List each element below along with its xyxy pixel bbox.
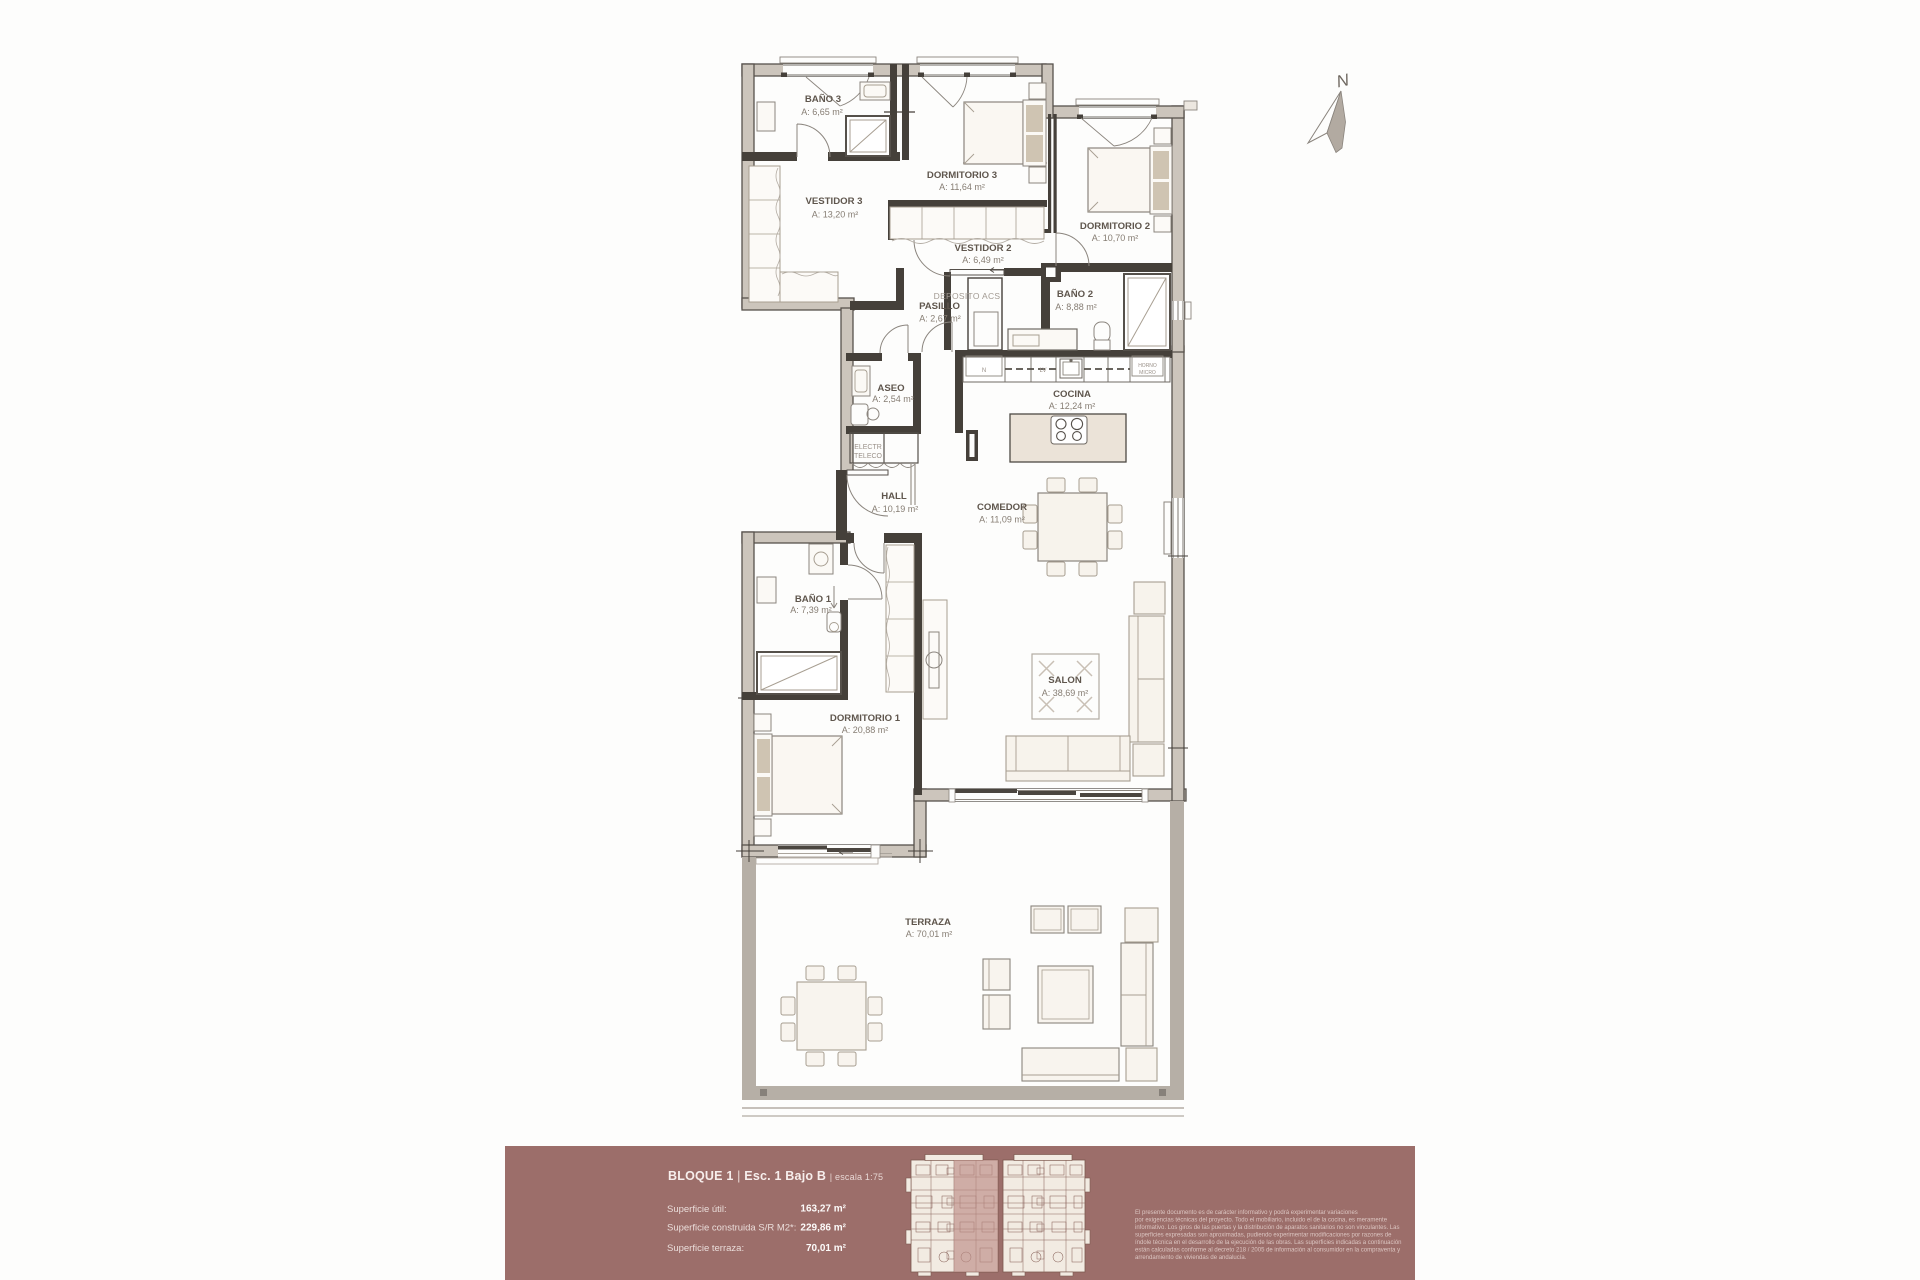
svg-text:A: 10,70 m²: A: 10,70 m² xyxy=(1092,233,1139,243)
svg-text:TELECO: TELECO xyxy=(854,453,883,460)
svg-text:A: 2,54 m²: A: 2,54 m² xyxy=(872,394,914,404)
svg-text:SALON: SALON xyxy=(1048,675,1082,686)
svg-text:VESTIDOR 3: VESTIDOR 3 xyxy=(805,196,862,207)
svg-text:DEPOSITO ACS: DEPOSITO ACS xyxy=(934,291,1001,301)
svg-text:A: 10,19 m²: A: 10,19 m² xyxy=(872,504,919,514)
svg-text:HALL: HALL xyxy=(881,491,907,502)
svg-text:superficies expresadas son apr: superficies expresadas son aproximadas, … xyxy=(1135,1233,1392,1239)
svg-text:informativo. Los giros de las: informativo. Los giros de las puertas y … xyxy=(1135,1225,1399,1231)
svg-text:A: 38,69 m²: A: 38,69 m² xyxy=(1042,688,1089,698)
svg-text:DORMITORIO 3: DORMITORIO 3 xyxy=(927,170,997,181)
svg-text:N: N xyxy=(982,368,986,374)
svg-text:están calculadas conforme al d: están calculadas conforme al decreto 218… xyxy=(1135,1248,1400,1254)
svg-text:A: 7,39 m²: A: 7,39 m² xyxy=(790,605,832,615)
svg-text:A: 20,88 m²: A: 20,88 m² xyxy=(842,725,889,735)
svg-text:A: 70,01 m²: A: 70,01 m² xyxy=(906,929,953,939)
svg-text:por exigencias técnicas del pr: por exigencias técnicas del proyecto. To… xyxy=(1135,1218,1388,1224)
svg-text:229,86 m²: 229,86 m² xyxy=(800,1223,846,1234)
svg-text:A: 11,64 m²: A: 11,64 m² xyxy=(939,182,985,192)
svg-text:BAÑO 3: BAÑO 3 xyxy=(805,94,841,105)
svg-text:El presente documento es de ca: El presente documento es de carácter inf… xyxy=(1135,1210,1358,1216)
svg-text:LV: LV xyxy=(1040,368,1047,374)
svg-text:A: 8,88 m²: A: 8,88 m² xyxy=(1055,302,1097,312)
svg-text:Superficie terraza:: Superficie terraza: xyxy=(667,1243,744,1254)
svg-text:DORMITORIO 2: DORMITORIO 2 xyxy=(1080,221,1150,232)
svg-text:VESTIDOR 2: VESTIDOR 2 xyxy=(954,243,1011,254)
svg-text:DORMITORIO 1: DORMITORIO 1 xyxy=(830,713,901,724)
svg-text:A: 6,49 m²: A: 6,49 m² xyxy=(962,255,1004,265)
svg-text:MICRO: MICRO xyxy=(1139,370,1156,376)
svg-text:A: 2,67 m²: A: 2,67 m² xyxy=(919,314,961,324)
svg-text:ASEO: ASEO xyxy=(877,383,905,394)
svg-text:163,27 m²: 163,27 m² xyxy=(800,1204,846,1215)
svg-text:Superficie útil:: Superficie útil: xyxy=(667,1204,727,1215)
svg-text:A: 13,20 m²: A: 13,20 m² xyxy=(812,210,859,220)
svg-text:PASILLO: PASILLO xyxy=(919,301,960,312)
svg-text:Superficie construida S/R M2*:: Superficie construida S/R M2*: xyxy=(667,1223,796,1234)
svg-text:A: 12,24 m²: A: 12,24 m² xyxy=(1049,401,1096,411)
svg-text:BLOQUE 1 | Esc. 1 Bajo B | esc: BLOQUE 1 | Esc. 1 Bajo B | escala 1:75 xyxy=(668,1169,883,1183)
svg-text:HORNO: HORNO xyxy=(1138,363,1157,369)
svg-text:A: 6,65 m²: A: 6,65 m² xyxy=(801,107,843,117)
svg-text:arrendamiento de viviendas de: arrendamiento de viviendas de andalucía. xyxy=(1135,1255,1247,1261)
svg-text:COCINA: COCINA xyxy=(1053,389,1091,400)
svg-text:TERRAZA: TERRAZA xyxy=(905,917,951,928)
svg-text:BAÑO 1: BAÑO 1 xyxy=(795,594,832,605)
svg-text:BAÑO 2: BAÑO 2 xyxy=(1057,289,1093,300)
svg-text:A: 11,09 m²: A: 11,09 m² xyxy=(979,515,1025,525)
svg-text:70,01 m²: 70,01 m² xyxy=(806,1243,847,1254)
svg-text:COMEDOR: COMEDOR xyxy=(977,502,1027,513)
svg-text:índole técnica en el desarroll: índole técnica en el desarrollo de la ej… xyxy=(1135,1240,1402,1246)
svg-text:ELECTR: ELECTR xyxy=(854,444,882,451)
